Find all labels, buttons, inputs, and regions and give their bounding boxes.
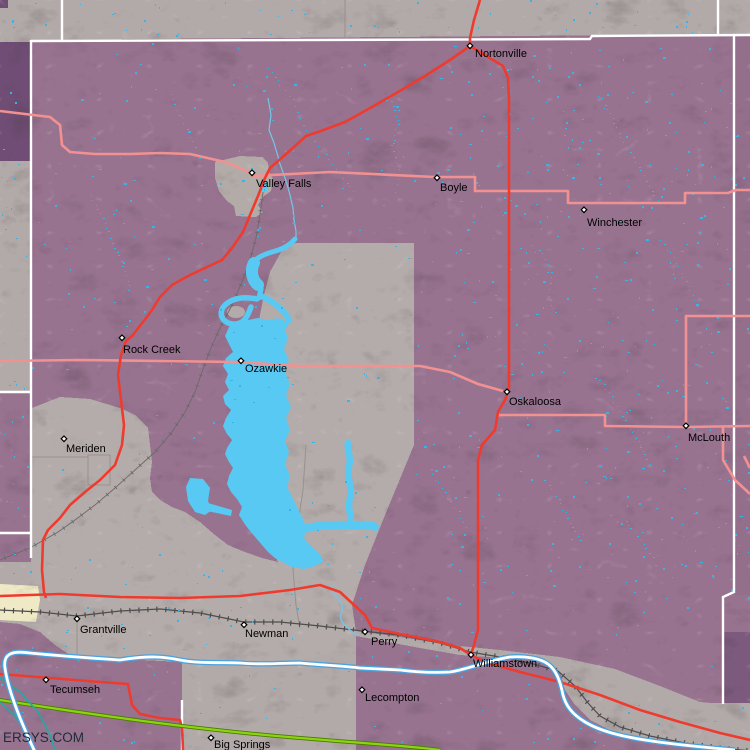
svg-text:Valley Falls: Valley Falls [256, 178, 312, 190]
svg-text:ERSYS.COM: ERSYS.COM [3, 730, 84, 745]
svg-text:Newman: Newman [245, 628, 288, 640]
svg-text:Big Springs: Big Springs [214, 739, 271, 750]
svg-text:Lecompton: Lecompton [365, 692, 419, 704]
svg-text:Nortonville: Nortonville [475, 48, 527, 60]
svg-text:Perry: Perry [371, 636, 398, 648]
svg-text:Winchester: Winchester [587, 217, 642, 229]
svg-text:Meriden: Meriden [66, 443, 106, 455]
svg-text:Williamstown: Williamstown [473, 658, 537, 670]
svg-text:Ozawkie: Ozawkie [245, 363, 287, 375]
svg-text:McLouth: McLouth [688, 432, 730, 444]
svg-text:Oskaloosa: Oskaloosa [509, 396, 562, 408]
svg-text:Rock Creek: Rock Creek [123, 344, 181, 356]
svg-text:Grantville: Grantville [80, 624, 126, 636]
svg-text:Tecumseh: Tecumseh [50, 684, 100, 696]
svg-text:Boyle: Boyle [440, 182, 468, 194]
